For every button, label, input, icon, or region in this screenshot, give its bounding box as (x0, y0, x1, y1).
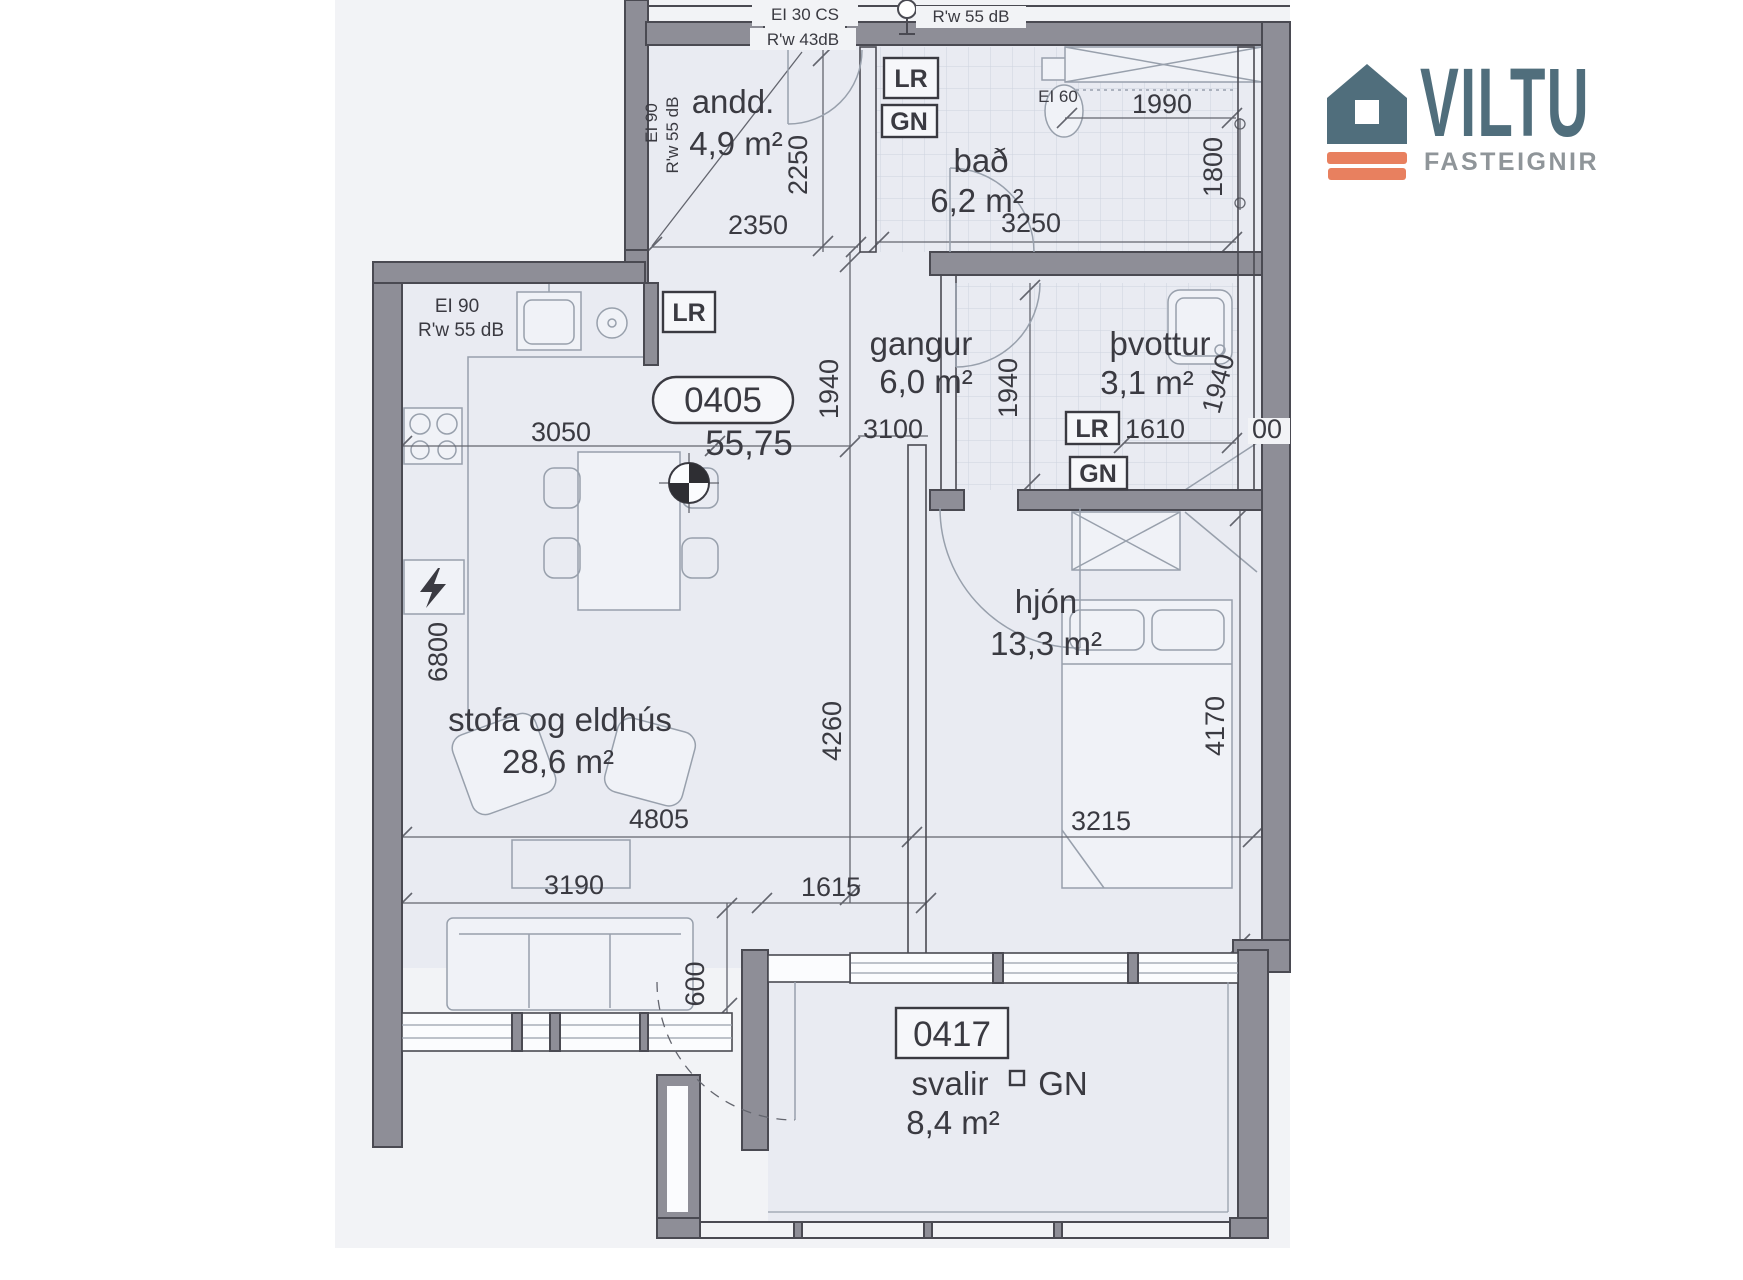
wall-left-outer (373, 283, 402, 1147)
label-ei30cs: EI 30 CS (771, 5, 839, 24)
logo-tagline: FASTEIGNIR (1424, 148, 1599, 177)
room-andd-area: 4,9 m² (689, 125, 783, 162)
unit-total-area: 55,75 (705, 424, 793, 463)
dim-andd-h: 2250 (783, 135, 813, 195)
floor-plan: EI 30 CS R'w 55 dB R'w 43dB EI 90 R'w 55… (0, 0, 1743, 1280)
room-living-name: stofa og eldhús (448, 701, 672, 738)
room-laundry-area: 3,1 m² (1100, 364, 1194, 401)
logo-brand: VILTU (1420, 64, 1590, 142)
wall-bed-top (1018, 490, 1262, 510)
tag-lr-bath: LR (894, 65, 927, 93)
label-rw55-kitchen: R'w 55 dB (418, 320, 504, 341)
tag-lr-kitchen: LR (672, 299, 705, 327)
partition-andd-bath (860, 47, 876, 252)
dim-laundry-cut: 00 (1252, 414, 1282, 444)
dim-living-len: 6800 (423, 622, 453, 682)
wall-top-left (646, 22, 764, 45)
balcony-number: 0417 (913, 1015, 991, 1054)
room-bedroom-name: hjón (1015, 583, 1077, 620)
wall-kitchen-top (373, 262, 645, 283)
room-balcony-area: 8,4 m² (906, 1104, 1000, 1141)
window-bedroom-south (850, 953, 1238, 983)
room-bedroom-area: 13,3 m² (990, 625, 1102, 662)
room-andd-name: andd. (692, 83, 775, 120)
screenshot-canvas: EI 30 CS R'w 55 dB R'w 43dB EI 90 R'w 55… (0, 0, 1743, 1280)
room-laundry-name: þvottur (1110, 325, 1211, 362)
dim-balcony-off: 600 (680, 961, 710, 1006)
dim-kitchen-w: 3050 (531, 417, 591, 447)
dim-sofa-w: 3190 (544, 870, 604, 900)
label-rw55-top: R'w 55 dB (933, 7, 1010, 26)
balcony-wall-left (742, 950, 768, 1150)
room-balcony-name: svalir (911, 1065, 988, 1102)
wall-bath-bottom (930, 252, 1262, 275)
dim-mid-w: 1615 (801, 872, 861, 902)
wall-bed-top-pier (930, 490, 964, 510)
unit-number: 0405 (684, 381, 762, 420)
dim-living-w: 4805 (629, 804, 689, 834)
balcony-door-threshold (768, 955, 850, 982)
label-rw43: R'w 43dB (767, 30, 839, 49)
tag-gn-laundry: GN (1079, 460, 1117, 488)
dim-andd-w: 2350 (728, 210, 788, 240)
dim-bed-w: 3215 (1071, 806, 1131, 836)
label-ei60-bath: EI 60 (1038, 87, 1078, 106)
room-hall-area: 6,0 m² (879, 363, 973, 400)
room-hall-name: gangur (870, 325, 973, 362)
kitchen-basin-icon (597, 308, 627, 338)
dim-bath-w: 3250 (1001, 208, 1061, 238)
house-icon (1325, 62, 1409, 180)
wall-kitchen-stub (644, 283, 658, 365)
dim-bed-h: 4170 (1200, 696, 1230, 756)
room-living-area: 28,6 m² (502, 743, 614, 780)
room-balcony-tag: GN (1038, 1065, 1088, 1102)
dim-laundry-h: 1940 (993, 358, 1023, 418)
label-rw55-andd: R'w 55 dB (663, 97, 682, 174)
dim-bath-top: 1990 (1132, 89, 1192, 119)
window-living-south (402, 1013, 732, 1051)
tag-gn-bath: GN (890, 108, 928, 136)
label-ei90-andd: EI 90 (642, 103, 661, 143)
balcony-wall-right (1238, 950, 1268, 1222)
tag-lr-laundry: LR (1075, 415, 1108, 443)
dim-hall-h: 1940 (814, 359, 844, 419)
sofa (447, 918, 693, 1010)
room-bath-name: bað (953, 142, 1008, 179)
label-ei90-kitchen: EI 90 (435, 296, 479, 317)
dim-hall-w: 3100 (863, 414, 923, 444)
partition-living-bed (908, 445, 926, 967)
wall-right-outer (1262, 22, 1290, 970)
dim-laundry-fix: 1610 (1125, 414, 1185, 444)
dim-bath-depth: 1800 (1198, 137, 1228, 197)
dim-living-h: 4260 (817, 701, 847, 761)
